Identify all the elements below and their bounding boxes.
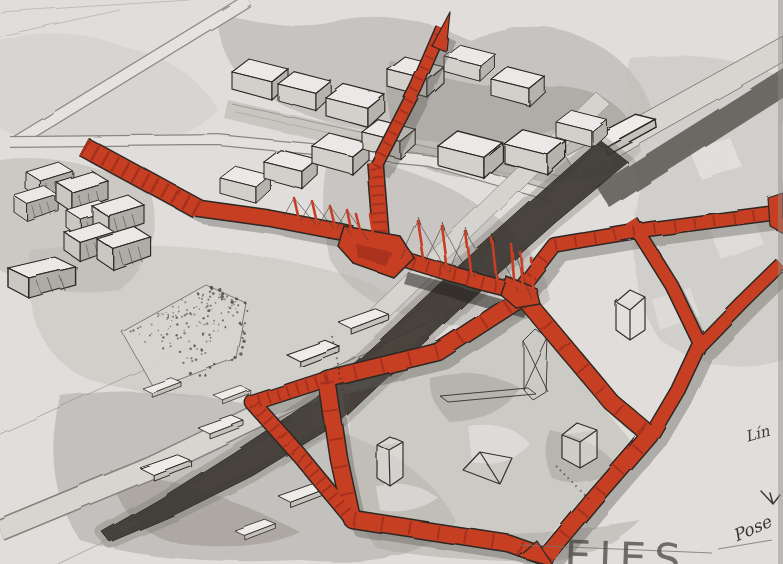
masterplan-sketch-canvas: Lín Pose EJES (0, 0, 783, 564)
sketch-photo: Lín Pose EJES (0, 0, 783, 564)
paper-grain (0, 0, 783, 564)
